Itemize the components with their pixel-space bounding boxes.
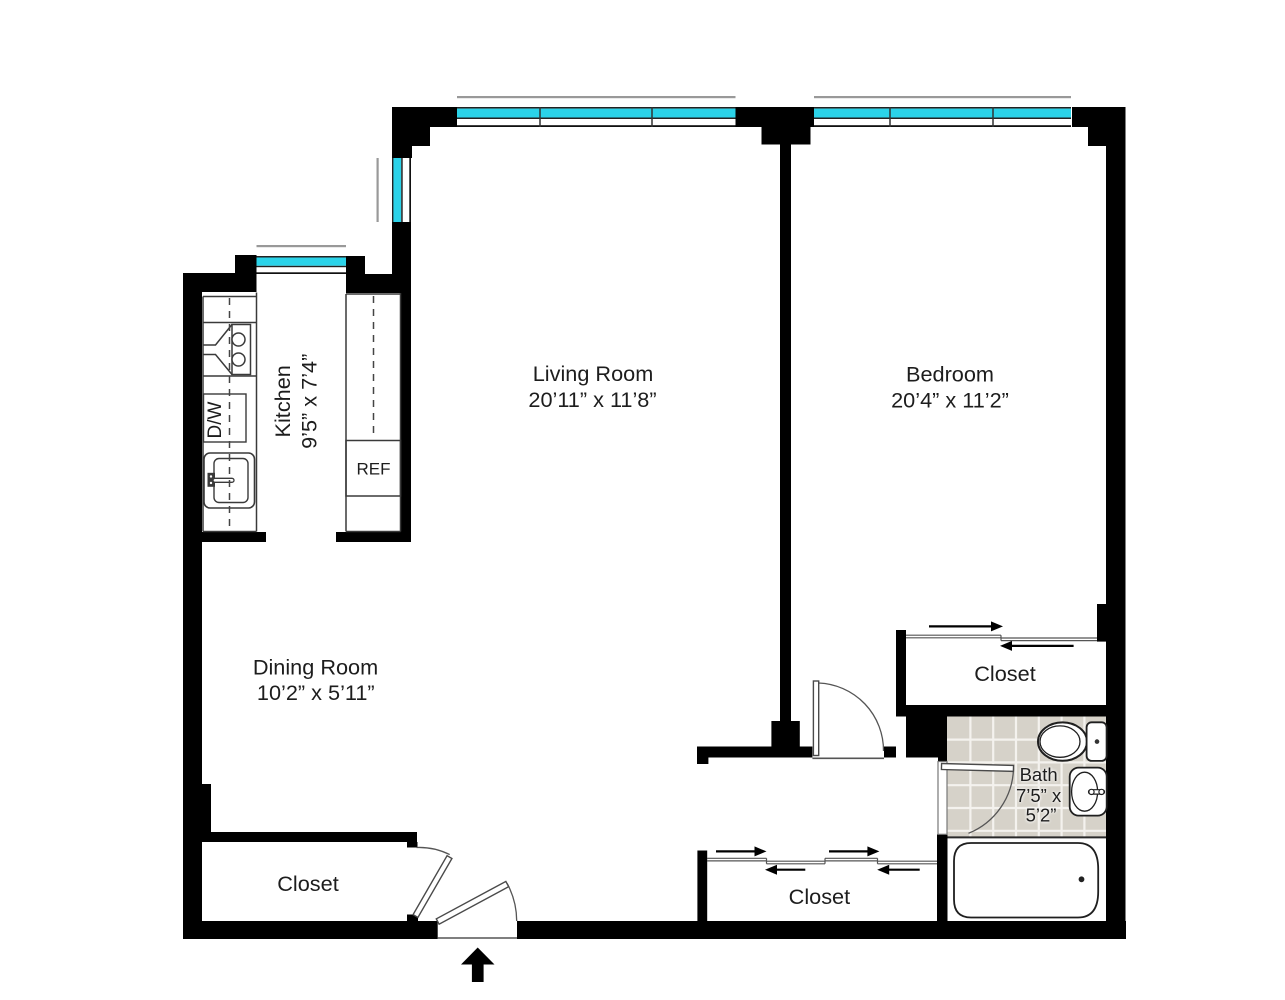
- svg-text:Closet: Closet: [789, 884, 850, 909]
- svg-text:7’5” x: 7’5” x: [1016, 785, 1062, 806]
- svg-text:Dining Room: Dining Room: [253, 654, 378, 679]
- svg-text:Bedroom: Bedroom: [906, 362, 994, 387]
- svg-text:Closet: Closet: [277, 871, 338, 896]
- svg-text:9’5” x 7’4”: 9’5” x 7’4”: [297, 354, 322, 449]
- svg-text:5’2”: 5’2”: [1026, 804, 1057, 825]
- svg-text:20’11” x 11’8”: 20’11” x 11’8”: [528, 387, 656, 412]
- svg-text:Kitchen: Kitchen: [270, 365, 295, 437]
- svg-text:20’4” x 11’2”: 20’4” x 11’2”: [891, 387, 1009, 412]
- svg-text:Closet: Closet: [974, 661, 1035, 686]
- svg-text:Living Room: Living Room: [533, 361, 654, 386]
- svg-text:10’2” x 5’11”: 10’2” x 5’11”: [257, 680, 375, 705]
- svg-text:Bath: Bath: [1020, 764, 1058, 785]
- svg-text:REF: REF: [357, 460, 391, 479]
- svg-text:D/W: D/W: [205, 401, 226, 438]
